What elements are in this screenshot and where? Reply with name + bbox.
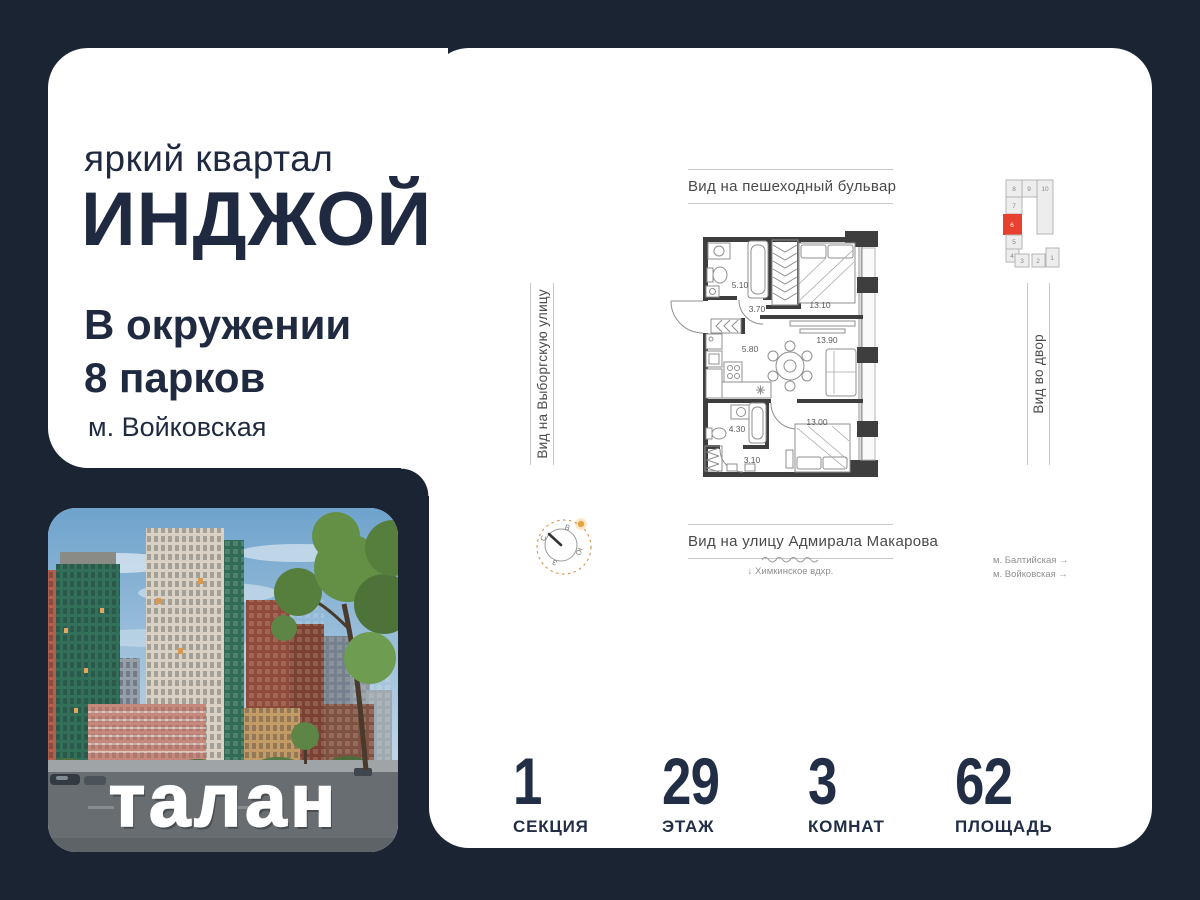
floor-plan: 5.10 3.70 13.10 5.80 13.90 4.30 3.10 13.… <box>660 228 895 488</box>
room-area-living: 13.90 <box>816 335 838 345</box>
stat-floor-value: 29 <box>662 750 719 812</box>
section-9: 9 <box>1027 186 1031 193</box>
stat-section-value: 1 <box>513 750 542 812</box>
usp-text: В окружении 8 парков <box>84 298 351 404</box>
stat-area-value: 62 <box>955 750 1012 812</box>
room-area-bedroom-2: 13.00 <box>806 417 828 427</box>
stat-rooms-label: КОМНАТ <box>808 817 885 837</box>
stat-floor: 29 ЭТАЖ <box>662 750 733 837</box>
compass-east: В <box>563 522 571 532</box>
stats-row: 1 СЕКЦИЯ 29 ЭТАЖ 3 КОМНАТ 62 ПЛОЩАДЬ <box>429 750 1152 890</box>
stat-rooms: 3 КОМНАТ <box>808 750 885 837</box>
developer-logo: талан <box>109 759 339 842</box>
compass-north: С <box>538 534 549 543</box>
section-7: 7 <box>1012 203 1016 210</box>
reservoir-note: ↓ Химкинское вдхр. <box>688 553 893 577</box>
view-label-top: Вид на пешеходный бульвар <box>688 169 893 204</box>
stat-area: 62 ПЛОЩАДЬ <box>955 750 1053 837</box>
metro-station: м. Войковская <box>88 412 266 443</box>
section-5: 5 <box>1012 239 1016 246</box>
metro-directions: м. Балтийская → м. Войковская → <box>993 554 1069 582</box>
stat-area-label: ПЛОЩАДЬ <box>955 817 1053 837</box>
card-join-fillet <box>401 468 429 496</box>
room-area-hallway-1: 3.70 <box>749 304 766 314</box>
section-10: 10 <box>1041 186 1049 193</box>
cityscape-render: талан талан <box>48 508 398 852</box>
stat-floor-label: ЭТАЖ <box>662 817 733 837</box>
room-area-bathroom-2: 4.30 <box>729 424 746 434</box>
stat-section-label: СЕКЦИЯ <box>513 817 589 837</box>
brand-name: ИНДЖОЙ <box>81 176 432 263</box>
section-4: 4 <box>1010 253 1014 260</box>
room-area-bedroom-1: 13.10 <box>809 300 831 310</box>
site-plan: 8 9 10 7 6 5 4 3 2 1 <box>998 170 1068 272</box>
section-1: 1 <box>1050 255 1054 262</box>
compass-icon: С В Ю З <box>520 500 610 595</box>
usp-line2: 8 парков <box>84 351 351 404</box>
view-label-left: Вид на Выборгскую улицу <box>530 283 554 465</box>
room-area-bathroom-1: 5.10 <box>732 280 749 290</box>
section-2: 2 <box>1036 258 1040 265</box>
plan-card: Вид на пешеходный бульвар Вид на улицу А… <box>429 48 1152 848</box>
info-card: яркий квартал ИНДЖОЙ В окружении 8 парко… <box>48 48 448 468</box>
room-area-hallway-2: 3.10 <box>744 455 761 465</box>
section-6-highlighted: 6 <box>1010 222 1014 229</box>
view-label-right: Вид во двор <box>1027 283 1050 465</box>
room-area-kitchen: 5.80 <box>742 344 759 354</box>
stat-rooms-value: 3 <box>808 750 837 812</box>
real-estate-flyer: { "brand": { "tagline": "яркий квартал",… <box>0 0 1200 900</box>
photo-card: талан талан <box>48 508 398 852</box>
section-3: 3 <box>1020 258 1024 265</box>
compass-west: З <box>550 557 558 567</box>
brand-tagline: яркий квартал <box>84 138 333 180</box>
compass-south: Ю <box>573 546 584 557</box>
wavy-line-icon <box>761 555 821 563</box>
section-8: 8 <box>1012 186 1016 193</box>
usp-line1: В окружении <box>84 298 351 351</box>
stat-section: 1 СЕКЦИЯ <box>513 750 589 837</box>
